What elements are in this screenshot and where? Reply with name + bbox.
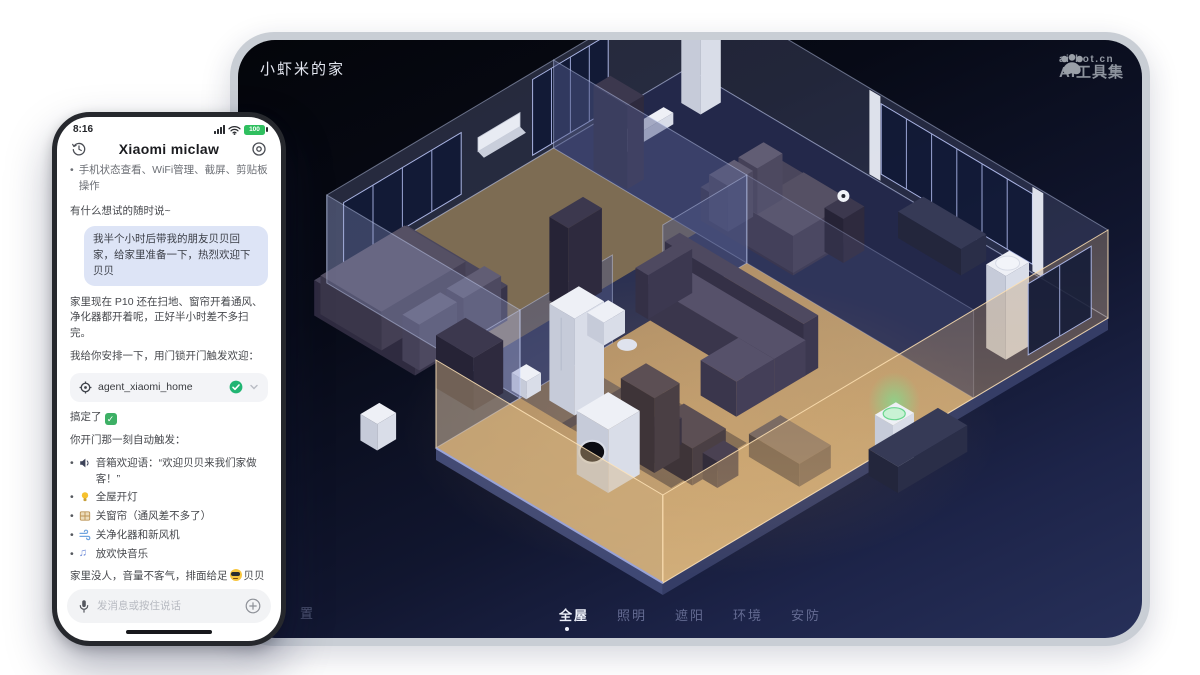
fridge[interactable]: [549, 286, 604, 415]
gear-icon[interactable]: [251, 141, 267, 157]
curtain-right[interactable]: [1032, 187, 1043, 278]
trigger-item: 关窗帘（通风差不多了）: [70, 509, 268, 525]
smart-home-tablet: 小虾米的家 ai-bot.cn AI工具集 全屋 照明 遮阳 环境 安防 置: [230, 32, 1150, 646]
capability-note: 手机状态查看、WiFi管理、截屏、剪贴板操作: [70, 163, 268, 195]
trigger-item: 关净化器和新风机: [70, 528, 268, 544]
tab-whole-house[interactable]: 全屋: [559, 605, 589, 624]
status-bar: 8:16 100: [57, 117, 281, 135]
room-tabs: 全屋 照明 遮阳 环境 安防: [238, 605, 1142, 624]
history-icon[interactable]: [71, 141, 87, 157]
music-icon: ♫: [79, 548, 91, 560]
mic-icon[interactable]: [77, 599, 91, 614]
phone-overlay: 8:16 100 Xiaomi miclaw 手机状态查看、WiFi管理、截屏、…: [52, 112, 286, 646]
tab-lighting[interactable]: 照明: [617, 605, 647, 624]
assistant-reply-2: 我给你安排一下，用门锁开门触发欢迎：: [70, 349, 268, 365]
plus-icon[interactable]: [245, 598, 261, 614]
time-label: 8:16: [73, 124, 93, 135]
small-device-outside[interactable]: [360, 403, 396, 451]
check-emoji: [105, 413, 117, 425]
assistant-reply-1: 家里现在 P10 还在扫地、窗帘开着通风、净化器都开着呢，正好半小时差不多扫完。: [70, 295, 268, 342]
message-input-bar: [67, 589, 271, 623]
user-message-bubble: 我半个小时后带我的朋友贝贝回家，给家里准备一下，热烈欢迎下贝贝: [84, 226, 268, 285]
trigger-item: 全屋开灯: [70, 490, 268, 506]
trigger-heading: 你开门那一刻自动触发：: [70, 433, 268, 449]
watermark: ai-bot.cn AI工具集: [1059, 54, 1124, 82]
smart-home-screen: 小虾米的家 ai-bot.cn AI工具集 全屋 照明 遮阳 环境 安防 置: [238, 40, 1142, 638]
air-purifier-bedroom[interactable]: [681, 40, 721, 115]
floorplan-3d: [238, 40, 1142, 638]
tab-environment[interactable]: 环境: [733, 605, 763, 624]
paw-icon: [1059, 54, 1085, 76]
home-indicator[interactable]: [126, 630, 212, 634]
home-title: 小虾米的家: [260, 58, 345, 79]
tab-security[interactable]: 安防: [791, 605, 821, 624]
agent-name: agent_xiaomi_home: [98, 380, 223, 396]
curtain-icon: [79, 510, 91, 522]
trigger-item: ♫放欢快音乐: [70, 547, 268, 563]
speaker-icon: [79, 457, 91, 469]
closing-note: 家里没人，音量不客气，排面给足贝贝一进门就有仪式感！: [70, 569, 268, 585]
signal-icon: [214, 125, 225, 134]
chat-body: 手机状态查看、WiFi管理、截屏、剪贴板操作 有什么想试的随时说~ 我半个小时后…: [57, 163, 281, 585]
trigger-item: 音箱欢迎语：“欢迎贝贝来我们家做客！”: [70, 456, 268, 488]
message-input[interactable]: [97, 600, 239, 612]
chevron-down-icon[interactable]: [249, 382, 259, 392]
wifi-icon: [228, 125, 241, 135]
sunglasses-emoji: [230, 569, 242, 581]
assistant-greeting: 有什么想试的随时说~: [70, 204, 268, 220]
curtain-left[interactable]: [869, 90, 880, 181]
wind-icon: [79, 529, 91, 541]
agent-icon: [79, 381, 92, 394]
bulb-icon: [79, 491, 91, 503]
tab-shading[interactable]: 遮阳: [675, 605, 705, 624]
check-icon: [229, 380, 243, 394]
agent-tool-chip[interactable]: agent_xiaomi_home: [70, 373, 268, 403]
chat-title: Xiaomi miclaw: [119, 141, 219, 157]
battery-icon: 100: [244, 125, 265, 135]
chat-header: Xiaomi miclaw: [57, 135, 281, 163]
done-row: 搞定了: [70, 410, 268, 426]
